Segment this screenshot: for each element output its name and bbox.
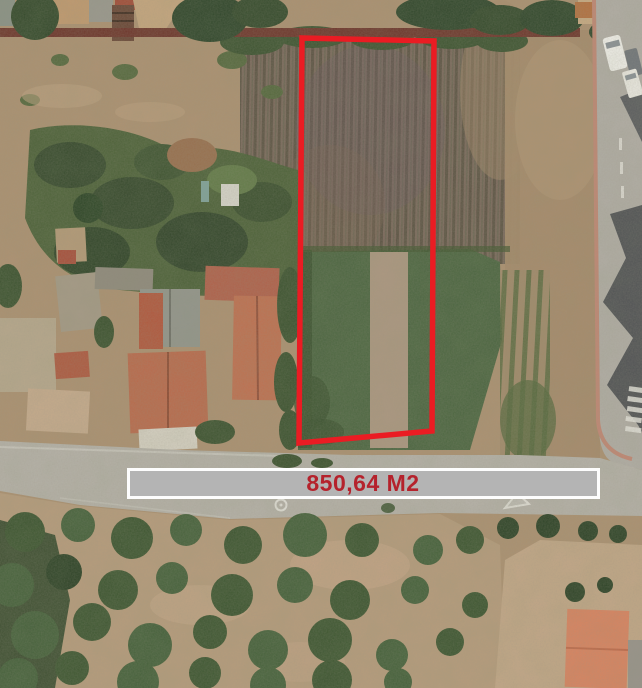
area-banner: 850,64 M2 [127, 468, 600, 499]
photo-grain [0, 0, 642, 688]
area-label: 850,64 M2 [306, 470, 419, 496]
aerial-photo: 850,64 M2 [0, 0, 642, 688]
